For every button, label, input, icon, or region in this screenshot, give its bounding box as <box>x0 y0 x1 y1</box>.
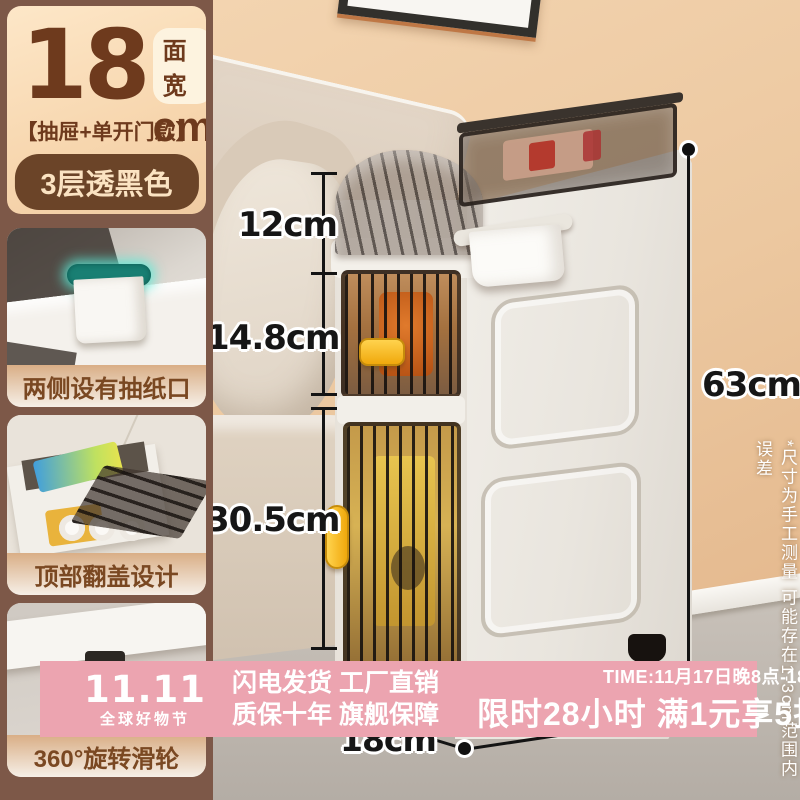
banner-slogans: 闪电发货 工厂直销 质保十年 旗舰保障 <box>232 667 439 732</box>
dim-line-63cm <box>687 156 690 662</box>
drawer-slats <box>345 274 457 394</box>
door-slats <box>347 426 457 676</box>
feature-label: 360°旋转滑轮 <box>7 735 206 777</box>
side-panel-recess <box>481 460 641 640</box>
dim-dot-top <box>682 143 695 156</box>
tray-item <box>583 129 601 162</box>
dim-cap <box>311 407 337 410</box>
measurement-disclaimer: *尺寸为手工测量 可能存在1-3cm范围内误差 <box>750 440 800 796</box>
feature-label: 两侧设有抽纸口 <box>7 365 206 407</box>
slogan-line-2: 质保十年 旗舰保障 <box>232 699 439 732</box>
tray-rail <box>457 92 683 134</box>
cart-bottom-door <box>343 422 461 680</box>
dim-cap <box>311 393 337 396</box>
dim-cap <box>311 172 337 175</box>
banner-divider <box>450 675 471 723</box>
festival-logo: 11.11 全球好物节 <box>84 671 206 727</box>
dim-label-drawer: 14.8cm <box>206 318 339 358</box>
festival-logo-text: 11.11 <box>84 671 206 708</box>
feature-image-flip-top <box>7 415 206 553</box>
spec-card: 18 面宽 cm 【抽屉+单开门款】 3层透黑色 <box>7 6 206 214</box>
dim-cap <box>311 647 337 650</box>
feature-label: 顶部翻盖设计 <box>7 553 206 595</box>
promo-banner: 11.11 全球好物节 闪电发货 工厂直销 质保十年 旗舰保障 TIME:11月… <box>40 661 757 737</box>
color-option-pill: 3层透黑色 <box>14 154 198 210</box>
width-value: 18 <box>21 20 147 111</box>
dim-label-height: 63cm <box>702 365 800 405</box>
tissue-sheet <box>469 224 566 288</box>
feature-card-tissue: 两侧设有抽纸口 <box>7 228 206 407</box>
width-badge: 面宽 <box>153 28 206 104</box>
feature-card-flip-top: 顶部翻盖设计 <box>7 415 206 595</box>
promo-time: TIME:11月17日晚8点-18日 <box>603 663 800 689</box>
product-image: 12cm 14.8cm 30.5cm 63cm 18cm *尺寸为手工测量 可能… <box>0 0 800 800</box>
cart-divider <box>337 396 465 424</box>
festival-logo-subtitle: 全球好物节 <box>100 712 190 727</box>
dim-label-lid: 12cm <box>238 205 337 245</box>
variant-label: 【抽屉+单开门款】 <box>7 116 206 146</box>
caster-wheel <box>628 634 666 662</box>
tissue-sheet <box>73 276 146 344</box>
promo-offer: 限时28小时 满1元享5折 <box>477 689 800 735</box>
drawer-handle <box>359 338 405 366</box>
wall-picture-frame <box>337 0 544 38</box>
promo-block: TIME:11月17日晚8点-18日 限时28小时 满1元享5折 <box>477 663 800 735</box>
slogan-line-1: 闪电发货 工厂直销 <box>232 667 439 700</box>
dim-dot-depth <box>458 742 471 755</box>
side-panel-recess <box>491 283 639 451</box>
feature-image-tissue <box>7 228 206 365</box>
cart-middle-drawer <box>341 270 461 398</box>
tray-item <box>529 140 555 172</box>
dim-label-door: 30.5cm <box>206 500 339 540</box>
